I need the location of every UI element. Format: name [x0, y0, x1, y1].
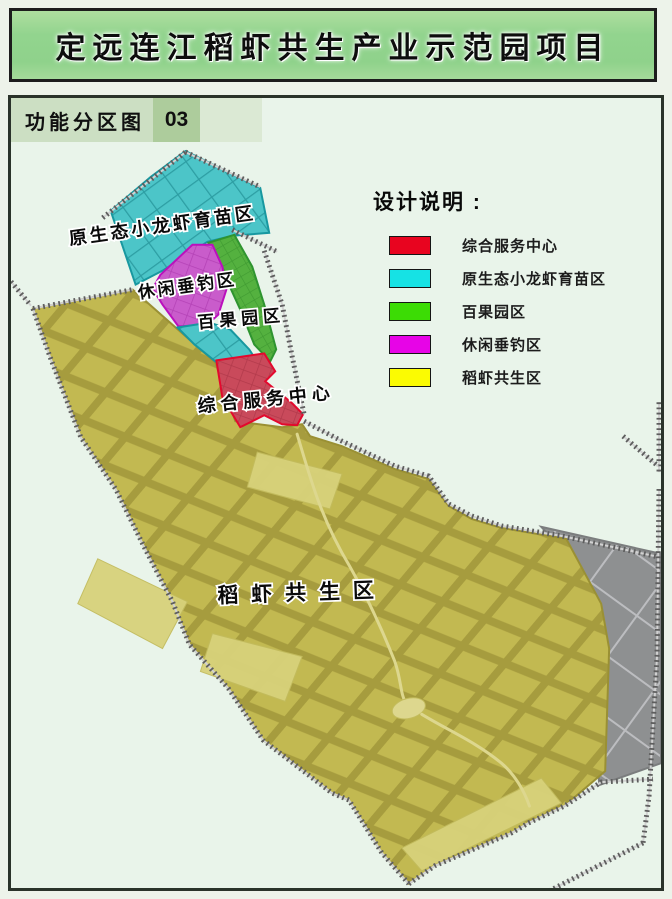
legend-swatch	[389, 368, 431, 387]
legend-item-breeding: 原生态小龙虾育苗区	[389, 269, 606, 287]
map-header-label: 功能分区图	[11, 98, 153, 142]
map-header-number: 03	[153, 98, 200, 142]
map-panel: 功能分区图 03	[8, 95, 664, 891]
map-header-spacer	[200, 98, 262, 142]
legend: 设计说明 : 综合服务中心 原生态小龙虾育苗区 百果园区 休闲垂钓区 稻虾共生区	[373, 186, 606, 401]
legend-item-label: 原生态小龙虾育苗区	[462, 268, 606, 289]
project-title: 定远连江稻虾共生产业示范园项目	[56, 23, 611, 67]
legend-swatch	[389, 302, 431, 321]
map-header-bar: 功能分区图 03	[11, 98, 262, 142]
legend-title: 设计说明 :	[373, 186, 606, 216]
legend-item-label: 稻虾共生区	[462, 367, 542, 388]
legend-item-label: 休闲垂钓区	[462, 334, 542, 355]
legend-item-orchard: 百果园区	[389, 302, 606, 320]
legend-swatch	[389, 335, 431, 354]
road	[549, 843, 643, 888]
legend-item-label: 综合服务中心	[462, 235, 558, 256]
legend-item-rice: 稻虾共生区	[389, 368, 606, 386]
legend-swatch	[389, 236, 431, 255]
road	[11, 282, 31, 306]
legend-item-fishing: 休闲垂钓区	[389, 335, 606, 353]
road	[623, 436, 658, 466]
legend-swatch	[389, 269, 431, 288]
title-banner: 定远连江稻虾共生产业示范园项目	[9, 8, 657, 82]
legend-item-label: 百果园区	[462, 301, 526, 322]
legend-item-service: 综合服务中心	[389, 236, 606, 254]
